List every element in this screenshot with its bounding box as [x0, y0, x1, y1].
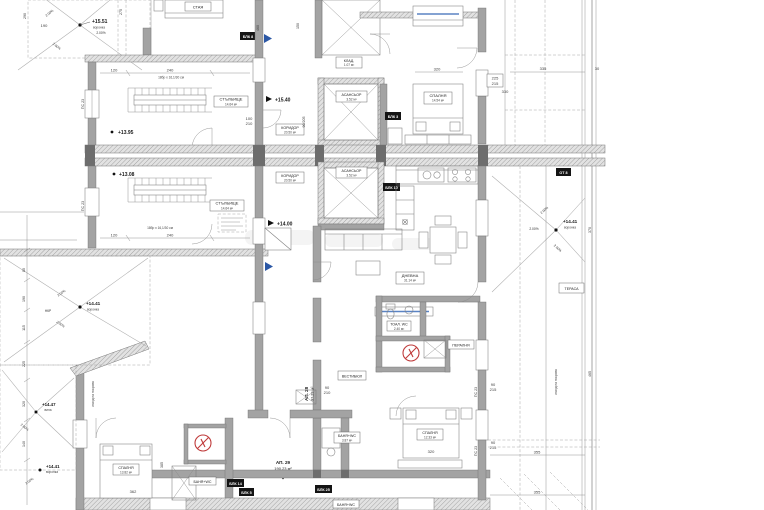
dim-120: 120	[111, 233, 118, 238]
door-size-210: 210	[324, 390, 331, 395]
dim-335: 335	[540, 66, 547, 71]
room-area-wc: 2.40 м²	[394, 327, 404, 331]
coffee-table	[356, 261, 380, 275]
window-mark-ps23: ПС 23	[474, 387, 478, 397]
nightstand	[461, 408, 472, 419]
door-size-210: 210	[246, 121, 253, 126]
dim-80: 80	[22, 268, 26, 272]
room-area-bedroom-br: 12.33 м²	[424, 435, 436, 439]
wardrobe	[413, 6, 463, 26]
room-area-bath-mid: 3.87 м²	[342, 438, 352, 442]
tag-blk3-label: БЛК 3	[388, 115, 398, 119]
desk-upper	[388, 128, 402, 144]
room-label-staircase-lower: СТЪЛБИЩЕ	[216, 201, 239, 206]
room-label-staircase-upper: СТЪЛБИЩЕ	[220, 97, 243, 102]
room-label-bath-mid: БАНЯ+WC	[338, 434, 356, 438]
stair-note-lower: 18бр x 16,1/30 см	[147, 226, 173, 230]
drain-word-left: воронка	[87, 308, 99, 312]
nkr-label: НКР	[45, 309, 52, 313]
dim-370: 370	[588, 227, 592, 233]
dim-385: 385	[160, 462, 164, 468]
drain-word-vila: вила	[44, 408, 51, 412]
nightstand	[390, 408, 401, 419]
dim-320: 320	[22, 401, 26, 407]
dim-240: 240	[167, 233, 174, 238]
dim-30: 30	[595, 66, 600, 71]
room-label-living: ДНЕВНА	[402, 273, 419, 278]
room-label-bedroom-upper: СПАЛНЯ	[430, 93, 447, 98]
win-size-225: 225	[492, 76, 499, 81]
dim-190: 190	[22, 296, 26, 302]
tag-blk5-label: БЛК 5	[241, 491, 251, 495]
room-label-bath-bl: БАНЯ+WC	[194, 480, 212, 484]
room-label-corridor-upper: КОРИДОР	[281, 126, 299, 130]
level-marker-1540: +15.40	[275, 98, 291, 104]
level-marker-1441-right: +14.41	[563, 219, 578, 224]
drain-word-right: воронка	[564, 226, 576, 230]
room-label-elevator-lower: АСАНСЬОР	[342, 169, 362, 173]
room-label-laundry: ПЕРАЛНЯ	[452, 343, 470, 347]
room-label-closet: КЛАД.	[344, 59, 354, 63]
dim-120: 120	[111, 68, 118, 73]
drain-word-top: воронка	[93, 26, 105, 30]
room-area-corridor-lower: 20.50 м²	[284, 178, 296, 182]
dim-460: 460	[256, 25, 260, 31]
dim-140: 140	[22, 441, 26, 447]
dim-320: 320	[428, 449, 435, 454]
slope-label: 2.00%	[96, 31, 105, 35]
door-size-215: 215	[490, 445, 497, 450]
tag-blk8-label: БЛК 8	[243, 35, 253, 39]
room-label-elevator-upper: АСАНСЬОР	[342, 93, 362, 97]
roof-exit-note: изход на покрива	[91, 381, 95, 407]
room-area-elevator-lower: 3.52 м²	[346, 173, 356, 177]
dim-330: 330	[502, 89, 509, 94]
room-label-bedroom-br: СПАЛНЯ	[422, 431, 438, 435]
drain-word-bl: воронка	[46, 470, 58, 474]
room-area-bedroom-upper: 14.54 м²	[432, 99, 444, 103]
room-label-terrace: ТЕРАСА	[565, 287, 580, 291]
level-marker-1441-bl: +14.41	[46, 464, 60, 469]
level-marker-1395: +13.95	[118, 130, 134, 136]
floor-plan-drawing: 335 30 +15.51 воронка 2.00% 2.00% 2.00% …	[0, 0, 764, 510]
tag-blk25-label: БЛК 25	[317, 488, 330, 492]
room-area-staircase-upper: 14.64 м²	[225, 102, 237, 106]
floor-plan-sheet: 335 30 +15.51 воронка 2.00% 2.00% 2.00% …	[0, 0, 764, 510]
level-marker-1400: +14.00	[277, 222, 293, 228]
room-area-corridor-upper: 20.50 м²	[284, 130, 296, 134]
room-label-bath-bottom: БАНЯ+WC	[337, 503, 355, 507]
win-size-215: 215	[492, 81, 499, 86]
room-area-living: 31.14 м²	[404, 279, 416, 283]
window-mark-ps23: ПС 23	[81, 99, 85, 109]
room-label-bedroom-bl: СПАЛНЯ	[118, 466, 134, 470]
level-marker-1441-left: +14.41	[86, 301, 101, 306]
dim-355: 355	[534, 490, 541, 495]
dim-225: 225	[22, 361, 26, 367]
level-marker-1551: +15.51	[92, 19, 108, 25]
apartment-29-label: АП. 29	[276, 460, 291, 465]
slope-label: 2.00%	[529, 227, 538, 231]
room-label-corridor-lower: КОРИДОР	[281, 174, 299, 178]
room-area-closet: 1.07 м²	[344, 63, 354, 67]
dim-355: 355	[534, 450, 541, 455]
dim-190: 190	[41, 23, 48, 28]
dim-275: 275	[119, 9, 123, 15]
room-area-bedroom-bl: 13.82 м²	[120, 470, 132, 474]
level-marker-1308: +13.08	[119, 172, 135, 178]
dim-150: 150	[296, 23, 300, 29]
tag-ot8-label: ОТ 8	[559, 171, 567, 175]
dim-362: 362	[130, 489, 137, 494]
dim-115: 115	[22, 325, 26, 331]
room-area-elevator-upper: 3.52 м²	[346, 97, 356, 101]
window-mark-ps23: ПС 23	[474, 446, 478, 456]
dim-290: 290	[23, 13, 27, 19]
stair-note-upper: 18бр x 16,1/30 см	[158, 76, 184, 80]
door-size-90-205: 90/205	[302, 117, 306, 128]
tag-blk14-label: БЛК 14	[229, 482, 242, 486]
window-mark-ps23: ПС 23	[81, 201, 85, 211]
level-marker-1447: +14.47	[42, 402, 56, 407]
room-label-staya: СТАЯ	[193, 5, 204, 10]
door-size-215: 215	[490, 387, 497, 392]
roof-exit-note: изход на покрива	[554, 369, 558, 395]
dim-320: 320	[434, 67, 441, 72]
dim-465: 465	[588, 371, 592, 377]
dim-240: 240	[167, 68, 174, 73]
room-label-hall: ВЕСТИБЮЛ	[342, 374, 363, 378]
room-area-staircase-lower: 14.64 м²	[221, 206, 233, 210]
